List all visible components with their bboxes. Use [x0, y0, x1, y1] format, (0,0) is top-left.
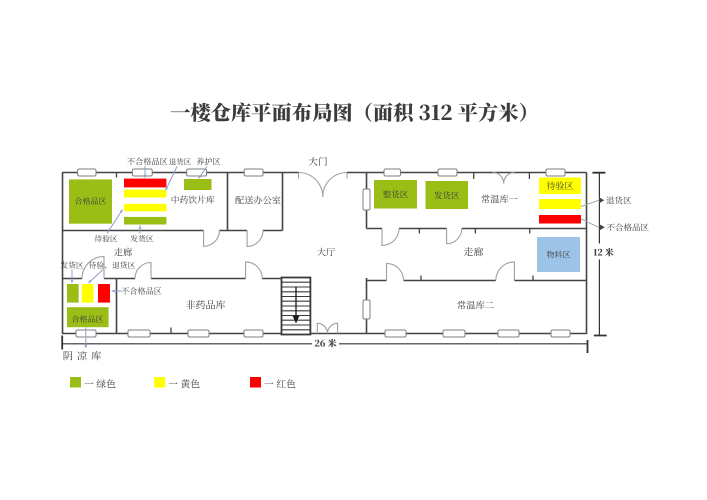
svg-text:常温库二: 常温库二: [457, 298, 494, 312]
svg-text:常温库一: 常温库一: [481, 192, 518, 206]
svg-text:中药饮片库: 中药饮片库: [171, 193, 215, 206]
svg-text:退货区: 退货区: [169, 157, 192, 168]
svg-text:合格品区: 合格品区: [75, 196, 107, 207]
svg-text:合格品区: 合格品区: [72, 314, 104, 325]
svg-text:大厅: 大厅: [317, 245, 336, 259]
svg-text:不合格品区: 不合格品区: [127, 157, 168, 168]
svg-text:待验区: 待验区: [94, 234, 118, 245]
svg-text:物料区: 物料区: [547, 250, 571, 261]
svg-text:26 米: 26 米: [314, 336, 336, 349]
svg-text:养护区: 养护区: [196, 157, 221, 168]
svg-text:发货区: 发货区: [60, 260, 84, 271]
svg-text:待验、退货区: 待验、退货区: [89, 260, 136, 271]
svg-text:大门: 大门: [308, 154, 327, 168]
svg-text:整货区: 整货区: [383, 189, 409, 201]
svg-text:一楼仓库平面布局图（面积 312 平方米）: 一楼仓库平面布局图（面积 312 平方米）: [170, 97, 539, 126]
svg-text:一 绿色: 一 绿色: [84, 376, 116, 390]
svg-text:走廊: 走廊: [114, 245, 133, 259]
svg-text:退货区: 退货区: [606, 194, 632, 206]
svg-text:发货区: 发货区: [130, 234, 154, 245]
svg-text:走廊: 走廊: [464, 244, 484, 259]
svg-text:不合格品区: 不合格品区: [607, 221, 650, 233]
svg-text:待验区: 待验区: [546, 179, 573, 192]
svg-text:不合格品区: 不合格品区: [121, 286, 162, 297]
svg-text:12 米: 12 米: [593, 245, 614, 258]
svg-text:一 红色: 一 红色: [264, 376, 296, 390]
svg-text:配送办公室: 配送办公室: [235, 193, 281, 207]
svg-text:阴凉库: 阴凉库: [63, 348, 106, 363]
svg-text:非药品库: 非药品库: [186, 297, 226, 312]
svg-text:一 黄色: 一 黄色: [168, 376, 200, 390]
svg-text:发货区: 发货区: [434, 190, 460, 202]
